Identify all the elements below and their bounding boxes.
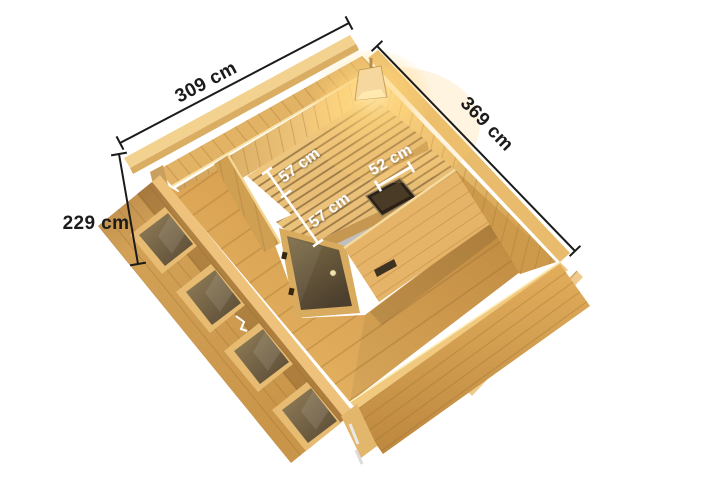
dimension-tick [117,136,124,149]
sauna-cabin-diagram: 309 cm 369 cm 229 cm 57 cm 57 cm 52 cm [0,0,712,500]
dimension-label-left-height: 229 cm [63,213,130,234]
dimension-label-back-width: 309 cm [172,57,241,107]
product-image: 309 cm 369 cm 229 cm 57 cm 57 cm 52 cm [0,0,712,500]
dimension-tick [346,16,353,29]
door-handle [330,270,337,277]
dimension-tick [111,153,127,156]
